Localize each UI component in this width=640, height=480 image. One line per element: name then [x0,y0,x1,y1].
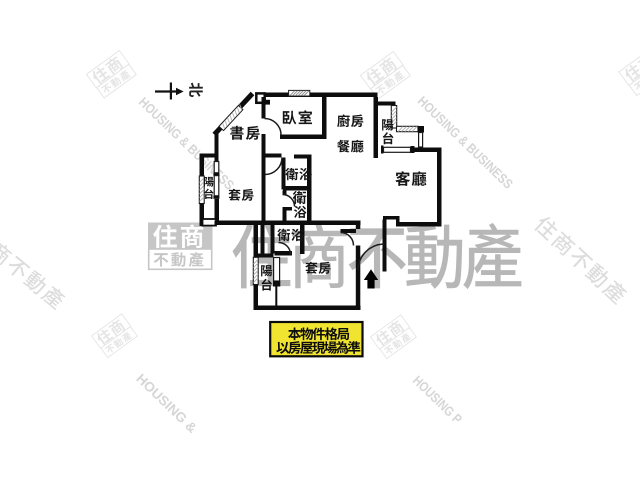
svg-text:HOUSING & BUSINESS: HOUSING & BUSINESS [136,94,237,192]
svg-text:HOUSING &: HOUSING & [133,371,200,436]
svg-text:HOUSING & BUSINESS: HOUSING & BUSINESS [415,93,516,191]
svg-text:HOUSING P: HOUSING P [410,373,465,427]
